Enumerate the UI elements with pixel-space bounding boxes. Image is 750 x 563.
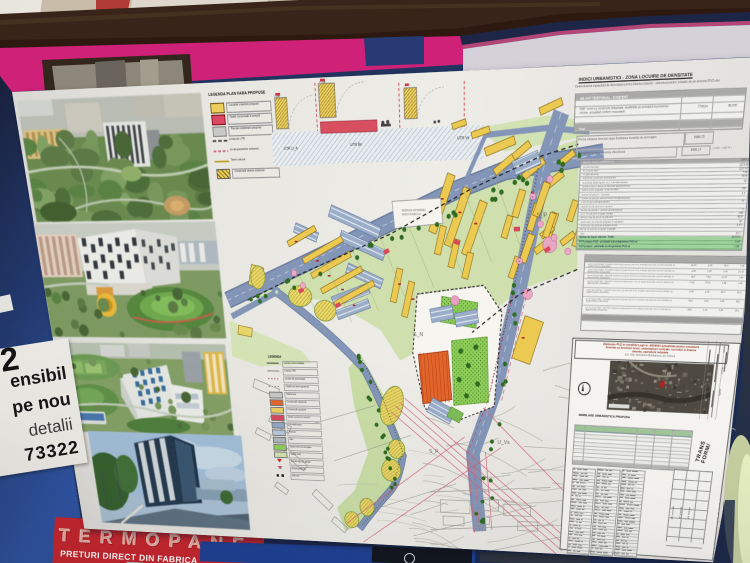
svg-text:P+10E: P+10E [319, 82, 326, 85]
svg-text:S_P: S_P [429, 449, 438, 455]
svg-text:MAICII DOMNULUI: MAICII DOMNULUI [402, 213, 421, 217]
svg-text:S_P: S_P [536, 213, 547, 220]
svg-text:S_N: S_N [413, 332, 423, 338]
svg-text:BISERICA ADORMIREA: BISERICA ADORMIREA [402, 209, 426, 213]
svg-text:U_Vs: U_Vs [497, 440, 510, 446]
svg-text:P+8E: P+8E [274, 96, 280, 99]
